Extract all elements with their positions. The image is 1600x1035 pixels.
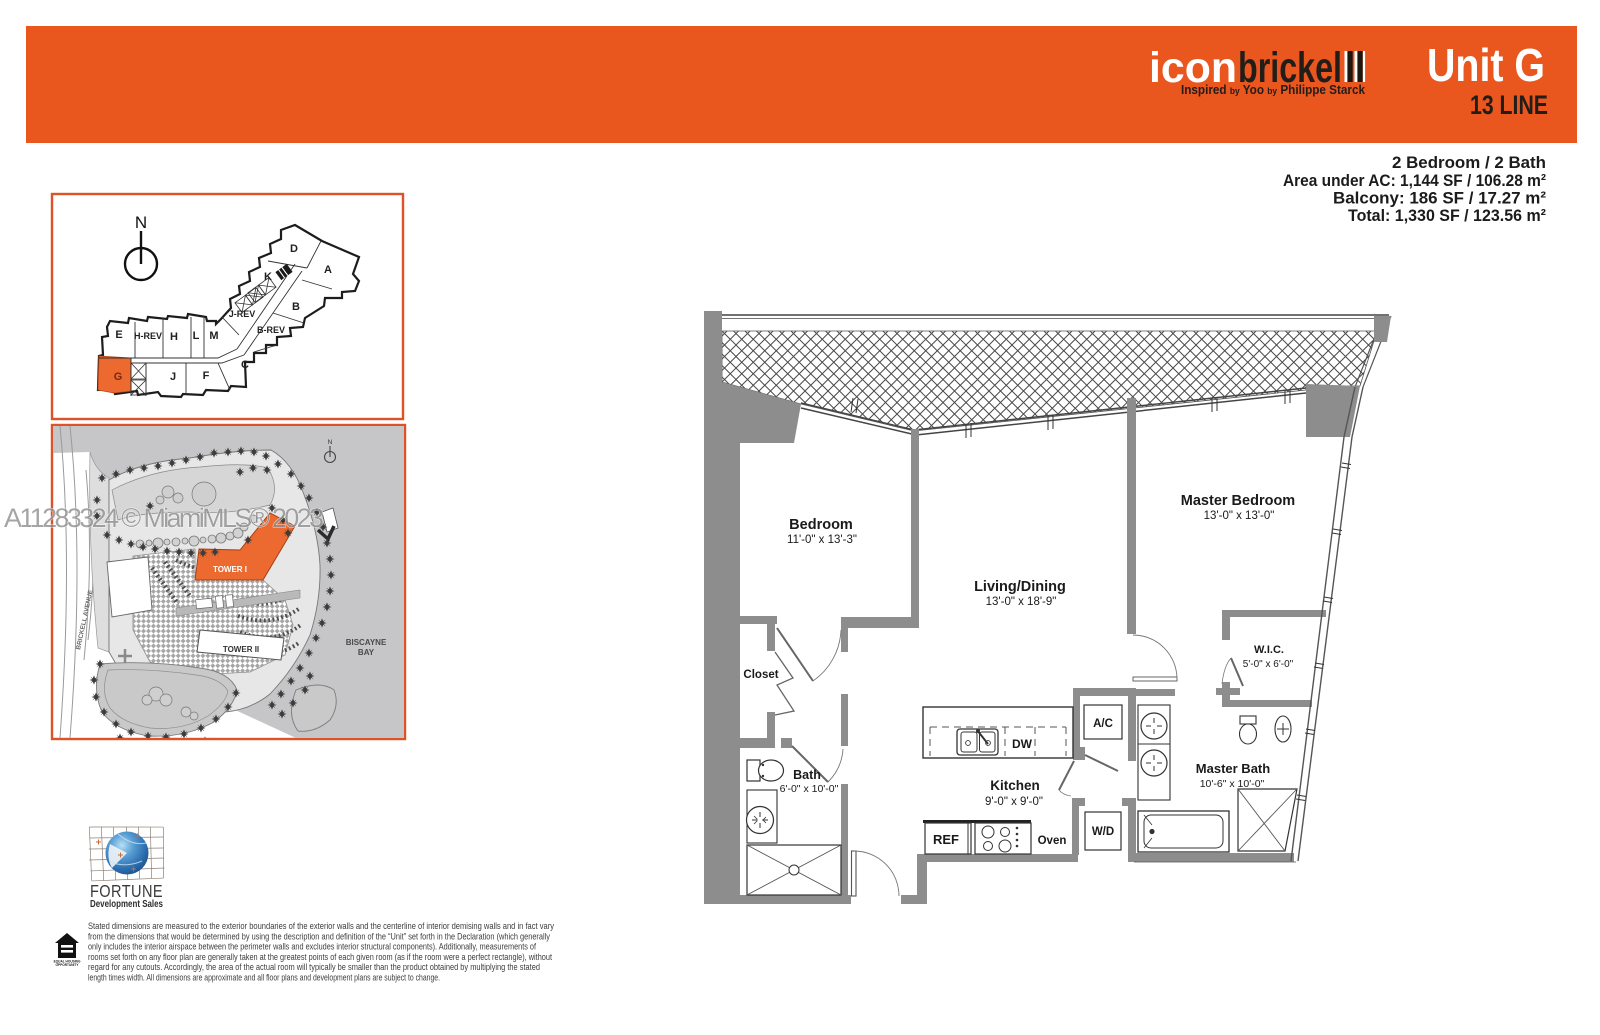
svg-text:OPPORTUNITY: OPPORTUNITY [55,963,79,967]
svg-text:Bath: Bath [793,768,821,782]
svg-text:Closet: Closet [743,669,778,681]
svg-text:13 LINE: 13 LINE [1470,90,1548,120]
svg-text:W.I.C.: W.I.C. [1254,644,1284,656]
svg-text:Area under AC: 1,144 SF / 106.: Area under AC: 1,144 SF / 106.28 m² [1283,171,1546,190]
svg-text:Balcony: 186 SF / 17.27 m²: Balcony: 186 SF / 17.27 m² [1333,189,1546,208]
svg-text:Master Bath: Master Bath [1196,761,1270,776]
svg-text:F: F [203,370,210,382]
svg-text:Bedroom: Bedroom [789,517,853,533]
svg-text:REF: REF [933,832,959,847]
svg-text:N: N [328,439,333,446]
svg-text:from the dimensions that would: from the dimensions that would be determ… [88,931,550,941]
svg-text:Kitchen: Kitchen [990,778,1040,793]
svg-text:11'-0" x 13'-3": 11'-0" x 13'-3" [787,534,857,546]
svg-text:Master Bedroom: Master Bedroom [1181,493,1295,509]
svg-text:B: B [292,301,300,313]
svg-text:5'-0" x 6'-0": 5'-0" x 6'-0" [1243,659,1294,670]
svg-text:TOWER I: TOWER I [213,565,247,574]
svg-text:FORTUNE: FORTUNE [90,881,163,901]
svg-text:A11283324 © MiamiMLS® 2023: A11283324 © MiamiMLS® 2023 [4,503,324,533]
svg-text:13'-0" x 18'-9": 13'-0" x 18'-9" [986,596,1057,608]
svg-text:10'-6" x 10'-0": 10'-6" x 10'-0" [1200,778,1265,790]
svg-text:D: D [290,243,298,255]
svg-text:A/C: A/C [1093,718,1113,730]
svg-text:Unit G: Unit G [1427,39,1545,91]
svg-text:9'-0" x 9'-0": 9'-0" x 9'-0" [985,796,1043,808]
svg-text:B-REV: B-REV [257,325,285,335]
svg-text:rooms set forth on any floor p: rooms set forth on any floor plan are ge… [88,952,552,962]
svg-text:BAY: BAY [358,648,375,657]
svg-text:J: J [170,371,176,383]
svg-text:E: E [115,329,122,341]
svg-text:L: L [193,330,200,342]
svg-text:only includes the interior air: only includes the interior airspace betw… [88,942,536,952]
svg-text:Oven: Oven [1038,835,1067,847]
svg-text:13'-0" x 13'-0": 13'-0" x 13'-0" [1204,510,1275,522]
svg-text:Development Sales: Development Sales [90,899,163,910]
svg-text:H-REV: H-REV [134,331,162,341]
svg-text:A: A [324,264,332,276]
svg-text:regard for any cutouts. Accord: regard for any cutouts. Accordingly, the… [88,962,540,972]
svg-text:N: N [135,213,147,232]
svg-text:H: H [170,331,178,343]
svg-text:M: M [209,330,218,342]
svg-text:W/D: W/D [1092,826,1114,838]
svg-text:DW: DW [1012,737,1033,751]
svg-text:Stated dimensions are measured: Stated dimensions are measured to the ex… [88,921,555,931]
svg-text:2 Bedroom / 2 Bath: 2 Bedroom / 2 Bath [1392,153,1546,172]
svg-text:K: K [264,271,272,283]
svg-text:TOWER II: TOWER II [223,645,259,654]
svg-text:BISCAYNE: BISCAYNE [346,638,387,647]
svg-text:Total: 1,330 SF / 123.56 m²: Total: 1,330 SF / 123.56 m² [1348,206,1546,225]
svg-text:Living/Dining: Living/Dining [974,579,1066,595]
svg-text:J-REV: J-REV [229,309,256,319]
svg-text:6'-0" x 10'-0": 6'-0" x 10'-0" [780,783,839,795]
svg-text:C: C [241,359,249,371]
svg-text:length times width. All dimens: length times width. All dimensions are a… [88,973,440,983]
svg-text:Inspired by Yoo by Philippe St: Inspired by Yoo by Philippe Starck [1181,83,1365,97]
svg-text:G: G [114,371,123,383]
